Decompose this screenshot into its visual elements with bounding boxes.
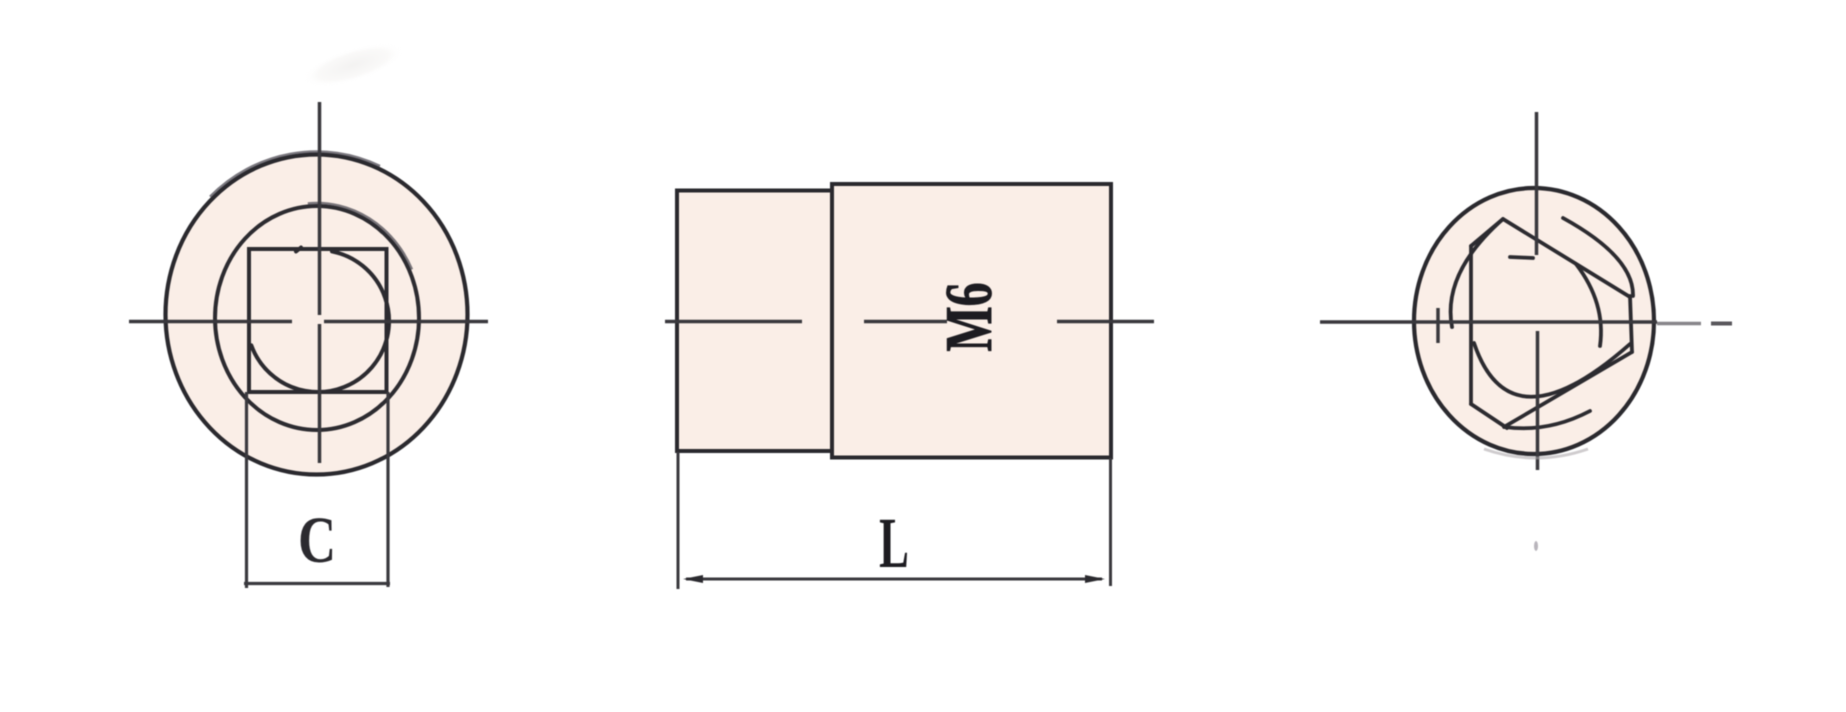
svg-text:M6: M6 [931,282,1006,351]
svg-text:L: L [879,503,909,584]
svg-text:C: C [298,504,336,577]
